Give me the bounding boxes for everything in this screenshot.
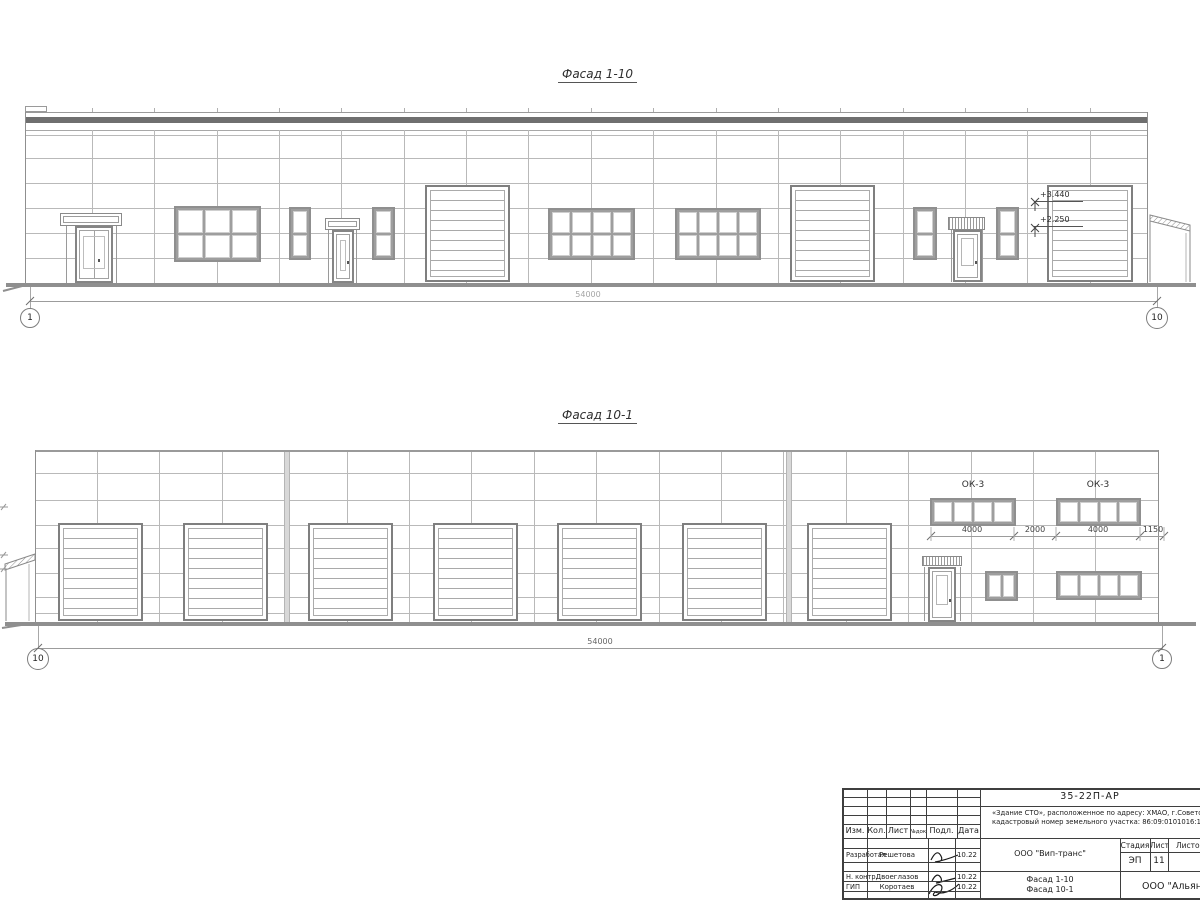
drawing-sheet: Фасад 1-10 +3.440 +2.250 54000 1 10 Фаса… bbox=[0, 0, 1200, 900]
title-block-line bbox=[843, 891, 980, 892]
tb-doc-code: 35-22П-АР bbox=[980, 791, 1200, 802]
title-block-line bbox=[843, 824, 980, 825]
tb-col-podl: Подл. bbox=[926, 826, 957, 835]
tb-date-gip: 10.22 bbox=[955, 883, 979, 891]
tb-stage-value: ЭП bbox=[1120, 856, 1150, 866]
title-block-line bbox=[843, 815, 980, 816]
title-block-line bbox=[867, 788, 868, 838]
title-block-line bbox=[842, 788, 1200, 790]
tb-sheet-label: Лист bbox=[1150, 841, 1168, 850]
tb-name-gip: Коротаев bbox=[868, 883, 926, 891]
tb-date-developer: 10.22 bbox=[955, 851, 979, 859]
tb-stage-label: Стадия bbox=[1120, 841, 1150, 850]
title-block-line bbox=[1168, 838, 1169, 871]
title-block-line bbox=[867, 838, 868, 899]
title-block-line bbox=[926, 788, 927, 838]
tb-company: ООО "Вип-транс" bbox=[980, 849, 1120, 858]
tb-name-ncontrol: Двоеглазов bbox=[868, 873, 926, 881]
tb-col-data: Дата bbox=[957, 826, 980, 835]
title-block-line bbox=[980, 806, 1200, 807]
tb-col-ndok: №док. bbox=[910, 829, 926, 835]
title-block-line bbox=[843, 797, 980, 798]
title-block-line bbox=[980, 788, 981, 900]
title-block-line bbox=[910, 788, 911, 838]
tb-address-line1: «Здание СТО», расположенное по адресу: Х… bbox=[992, 809, 1200, 817]
title-block-line bbox=[980, 871, 1200, 872]
title-block-line bbox=[843, 862, 980, 863]
tb-subject-line1: Фасад 1-10 bbox=[980, 875, 1120, 884]
title-block-line bbox=[843, 871, 980, 872]
title-block-line bbox=[843, 848, 980, 849]
tb-company2: ООО "Альянс" bbox=[1142, 881, 1200, 892]
tb-name-developer: Решетова bbox=[868, 851, 926, 859]
tb-col-kol: Кол. bbox=[867, 826, 886, 835]
title-block-line bbox=[842, 788, 844, 900]
title-block-line bbox=[1150, 838, 1151, 871]
title-block-line bbox=[955, 838, 956, 899]
title-block-line bbox=[928, 838, 929, 899]
title-block-line bbox=[1120, 838, 1200, 839]
title-block-line bbox=[843, 881, 980, 882]
tb-subject-line2: Фасад 10-1 bbox=[980, 885, 1120, 894]
tb-col-izm: Изм. bbox=[843, 826, 867, 835]
title-block-line bbox=[843, 838, 980, 839]
tb-col-list: Лист bbox=[886, 826, 910, 835]
tb-sheet-value: 11 bbox=[1150, 856, 1168, 866]
tb-address-line2: кадастровый номер земельного участка: 86… bbox=[992, 818, 1200, 826]
title-block-line bbox=[843, 806, 980, 807]
title-block-line bbox=[957, 788, 958, 838]
title-block-line bbox=[1120, 852, 1200, 853]
tb-sheets-label: Листов bbox=[1176, 841, 1200, 850]
tb-date-ncontrol: 10.22 bbox=[955, 873, 979, 881]
title-block-line bbox=[1120, 838, 1121, 899]
title-block: Изм. Кол. Лист №док. Подл. Дата Разработ… bbox=[0, 0, 1200, 900]
title-block-line bbox=[886, 788, 887, 838]
